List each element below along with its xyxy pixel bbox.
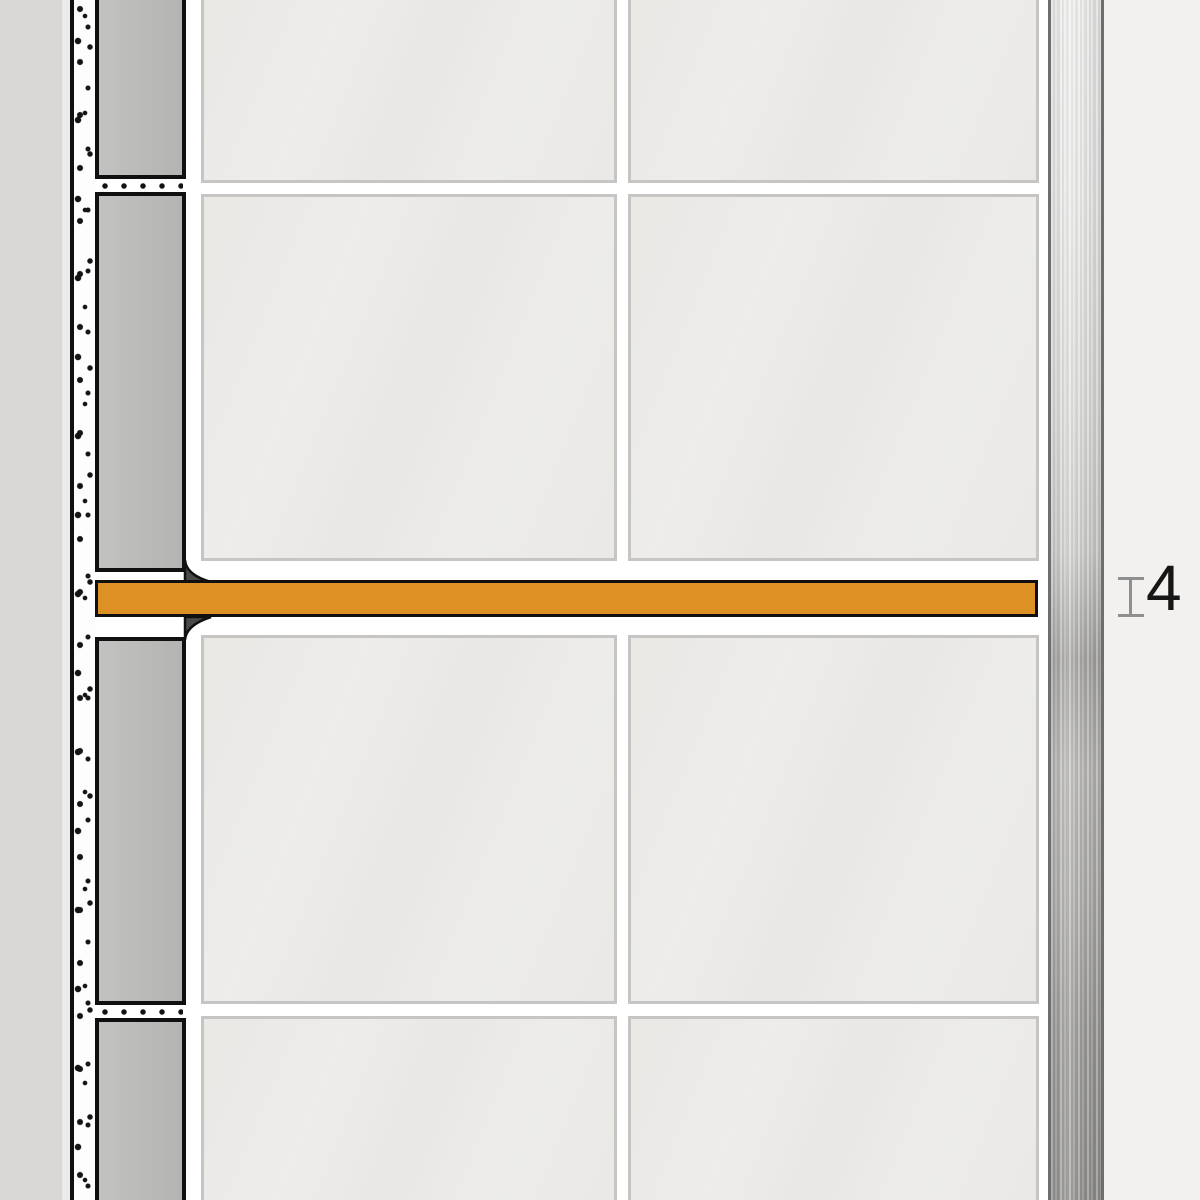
wall-tile xyxy=(628,1016,1039,1200)
steel-brushed-texture xyxy=(1051,0,1101,1200)
shelf-profile-bar xyxy=(95,580,1038,617)
mortar-joint-dots xyxy=(99,1005,183,1018)
dimension-cap-bottom xyxy=(1118,614,1144,617)
tile-cross-section-block xyxy=(95,192,186,572)
tile-wall-profile-diagram: 4 xyxy=(0,0,1200,1200)
mortar-adhesive-layer xyxy=(74,0,95,1200)
mortar-joint-dots xyxy=(99,179,183,192)
tile-cross-section-block xyxy=(95,0,186,179)
wall-tile xyxy=(628,0,1039,183)
dimension-stem xyxy=(1129,577,1132,617)
wall-tile xyxy=(201,1016,617,1200)
wall-substrate xyxy=(0,0,62,1200)
wall-tile xyxy=(201,0,617,183)
tile-cross-section-block xyxy=(95,637,186,1005)
steel-profile-strip xyxy=(1048,0,1104,1200)
wall-tile xyxy=(201,194,617,561)
wall-tile xyxy=(628,635,1039,1004)
profile-anchor-fillet-icon xyxy=(183,615,213,641)
wall-substrate-highlight xyxy=(62,0,70,1200)
wall-tile xyxy=(201,635,617,1004)
wall-tile xyxy=(628,194,1039,561)
dimension-value: 4 xyxy=(1146,556,1182,620)
tile-cross-section-block xyxy=(95,1018,186,1200)
